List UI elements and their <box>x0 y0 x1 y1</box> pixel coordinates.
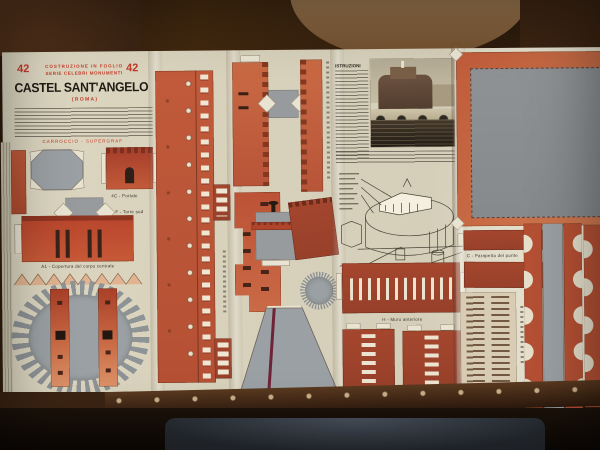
issue-number-left: 42 <box>17 63 29 75</box>
publisher-line: CARROCCIO - SUPERGRAF <box>23 138 143 144</box>
photo-bridge <box>371 108 455 120</box>
tower-strip-right <box>98 288 118 386</box>
photo-castle-top <box>390 67 416 79</box>
window <box>98 229 102 257</box>
flap <box>336 273 342 299</box>
slat-row <box>350 277 452 300</box>
photo-caption-lines <box>336 150 455 164</box>
window <box>58 371 63 375</box>
issue-number-right: 42 <box>126 62 138 74</box>
window <box>57 301 62 305</box>
part-main-wall-strip <box>155 71 216 383</box>
flap <box>15 224 22 254</box>
part-muro-laterale-right <box>402 330 461 391</box>
window-column <box>200 75 211 379</box>
finial <box>271 204 275 212</box>
vertical-caption-lines <box>520 306 524 366</box>
flap <box>376 323 390 329</box>
caption-muro-anteriore: H - Muro anteriore <box>352 316 452 322</box>
crenellation <box>300 60 307 192</box>
window <box>102 330 112 339</box>
instructions-block: ISTRUZIONI <box>335 63 369 159</box>
part-round-base <box>11 280 150 395</box>
castle-photograph <box>370 58 455 147</box>
caption-portale: 4C - Portale <box>111 193 137 198</box>
window <box>66 230 70 258</box>
window <box>55 331 65 340</box>
window <box>106 350 111 354</box>
fold-line <box>195 71 199 383</box>
round-cap-center <box>305 276 334 305</box>
part-octagon-base <box>29 148 85 192</box>
portale-door <box>125 167 134 183</box>
vertical-caption-lines <box>223 250 227 312</box>
window <box>58 355 63 359</box>
photo-statue <box>401 61 404 68</box>
flap <box>101 153 106 183</box>
window <box>88 230 92 258</box>
hole-column <box>185 77 194 377</box>
part-muro-anteriore <box>342 262 460 313</box>
flap <box>458 233 464 246</box>
foreground-object <box>165 418 545 450</box>
flap <box>240 55 260 62</box>
window <box>105 300 110 304</box>
part-cone-development <box>236 305 341 394</box>
part-strip-left-edge <box>11 150 27 214</box>
sheet-subtitle: ( R O M A ) <box>36 96 132 103</box>
flap <box>440 324 454 330</box>
instructions-heading: ISTRUZIONI <box>335 63 368 68</box>
slat-column <box>491 296 510 382</box>
copertura-band <box>21 215 133 221</box>
wall-ticks <box>161 91 183 371</box>
flap <box>407 325 421 331</box>
slat-column <box>466 296 485 382</box>
paper-sheet: 42 COSTRUZIONE IN FOGLIO SERIE CELEBRI M… <box>2 47 600 397</box>
window-grid <box>216 188 227 216</box>
instructions-lines <box>335 70 369 158</box>
courtyard-gray-center <box>470 67 600 218</box>
part-muro-laterale-left <box>342 329 395 389</box>
caption-torre-sud: F - Torre sud <box>115 209 143 214</box>
part-crenellated-wall-b <box>300 60 323 192</box>
photo-water <box>371 119 455 147</box>
part-slatted-wall <box>460 292 517 386</box>
crenellation <box>288 197 332 208</box>
part-gray-cap-small <box>268 90 298 118</box>
finial-top <box>268 201 278 205</box>
caption-parapetto: C - Parapetto del ponte <box>467 253 518 258</box>
table-wood-left <box>0 0 140 56</box>
window <box>238 106 248 109</box>
part-crenellated-wall-a <box>232 62 269 186</box>
flap <box>346 323 360 329</box>
part-courtyard-frame <box>456 51 600 226</box>
window <box>238 92 248 95</box>
tower-strip-left <box>50 289 70 387</box>
crenellation <box>262 62 269 186</box>
photo-scene: 42 COSTRUZIONE IN FOGLIO SERIE CELEBRI M… <box>0 0 600 450</box>
portale-crenellation <box>106 147 153 153</box>
caption-copertura: A1 - Copertura del corpo centrale <box>18 263 138 269</box>
series-line-2: SERIE CELEBRI MONUMENTI <box>36 70 132 76</box>
intro-paragraph-lines <box>14 107 152 138</box>
part-portale <box>106 147 153 189</box>
window <box>56 230 60 258</box>
window-grid <box>218 342 229 374</box>
sheet-title: CASTEL SANT'ANGELO <box>13 79 150 95</box>
slat-column <box>361 334 375 384</box>
part-copertura-corpo <box>21 215 133 262</box>
series-line-1: COSTRUZIONE IN FOGLIO <box>36 63 132 69</box>
window <box>106 368 111 372</box>
slat-column <box>424 336 438 386</box>
window-column <box>243 232 252 292</box>
flap <box>262 260 290 266</box>
